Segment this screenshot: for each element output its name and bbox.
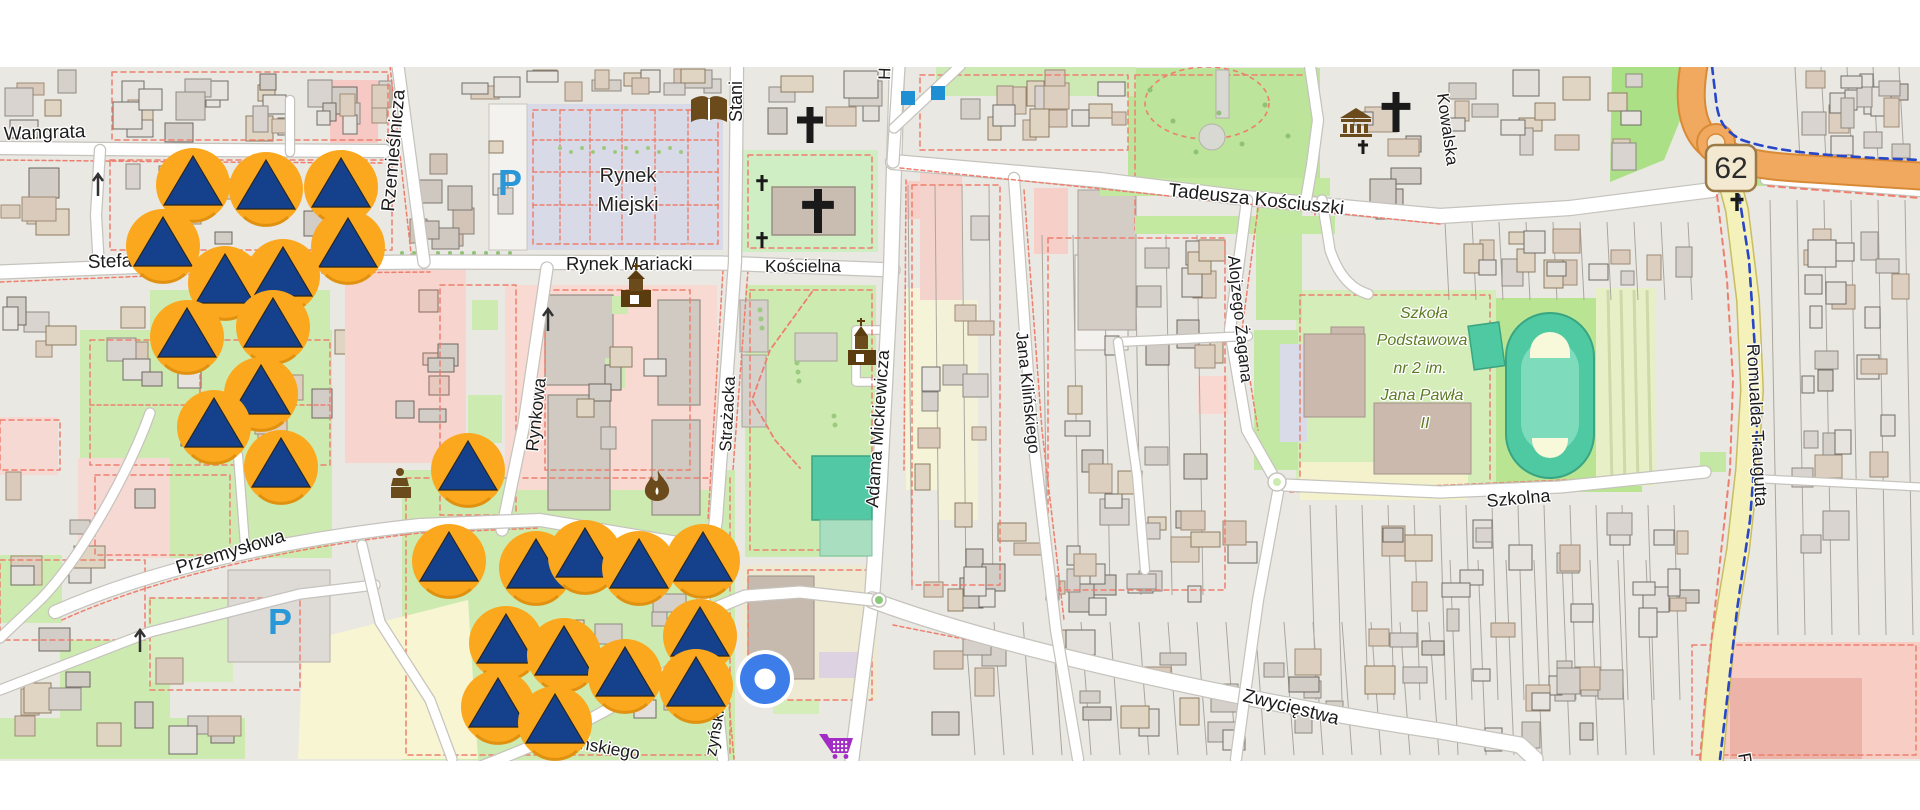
svg-text:Kościelna: Kościelna	[765, 256, 841, 276]
svg-text:II: II	[1421, 415, 1430, 432]
svg-text:Rynek Mariacki: Rynek Mariacki	[566, 253, 692, 274]
svg-text:Szkoła: Szkoła	[1400, 305, 1448, 322]
svg-text:P: P	[268, 601, 292, 642]
svg-text:Podstawowa: Podstawowa	[1377, 332, 1468, 349]
svg-text:Strażacka: Strażacka	[716, 375, 739, 452]
svg-text:62: 62	[1714, 152, 1747, 185]
svg-text:P: P	[498, 162, 522, 203]
svg-text:Miejski: Miejski	[597, 194, 658, 216]
svg-text:nr 2 im.: nr 2 im.	[1393, 360, 1446, 377]
svg-text:Stani: Stani	[726, 81, 746, 122]
svg-text:Jana Pawła: Jana Pawła	[1380, 387, 1464, 404]
svg-text:Wangrata: Wangrata	[3, 121, 86, 145]
svg-text:H: H	[875, 67, 894, 80]
svg-text:Rynek: Rynek	[600, 165, 658, 187]
